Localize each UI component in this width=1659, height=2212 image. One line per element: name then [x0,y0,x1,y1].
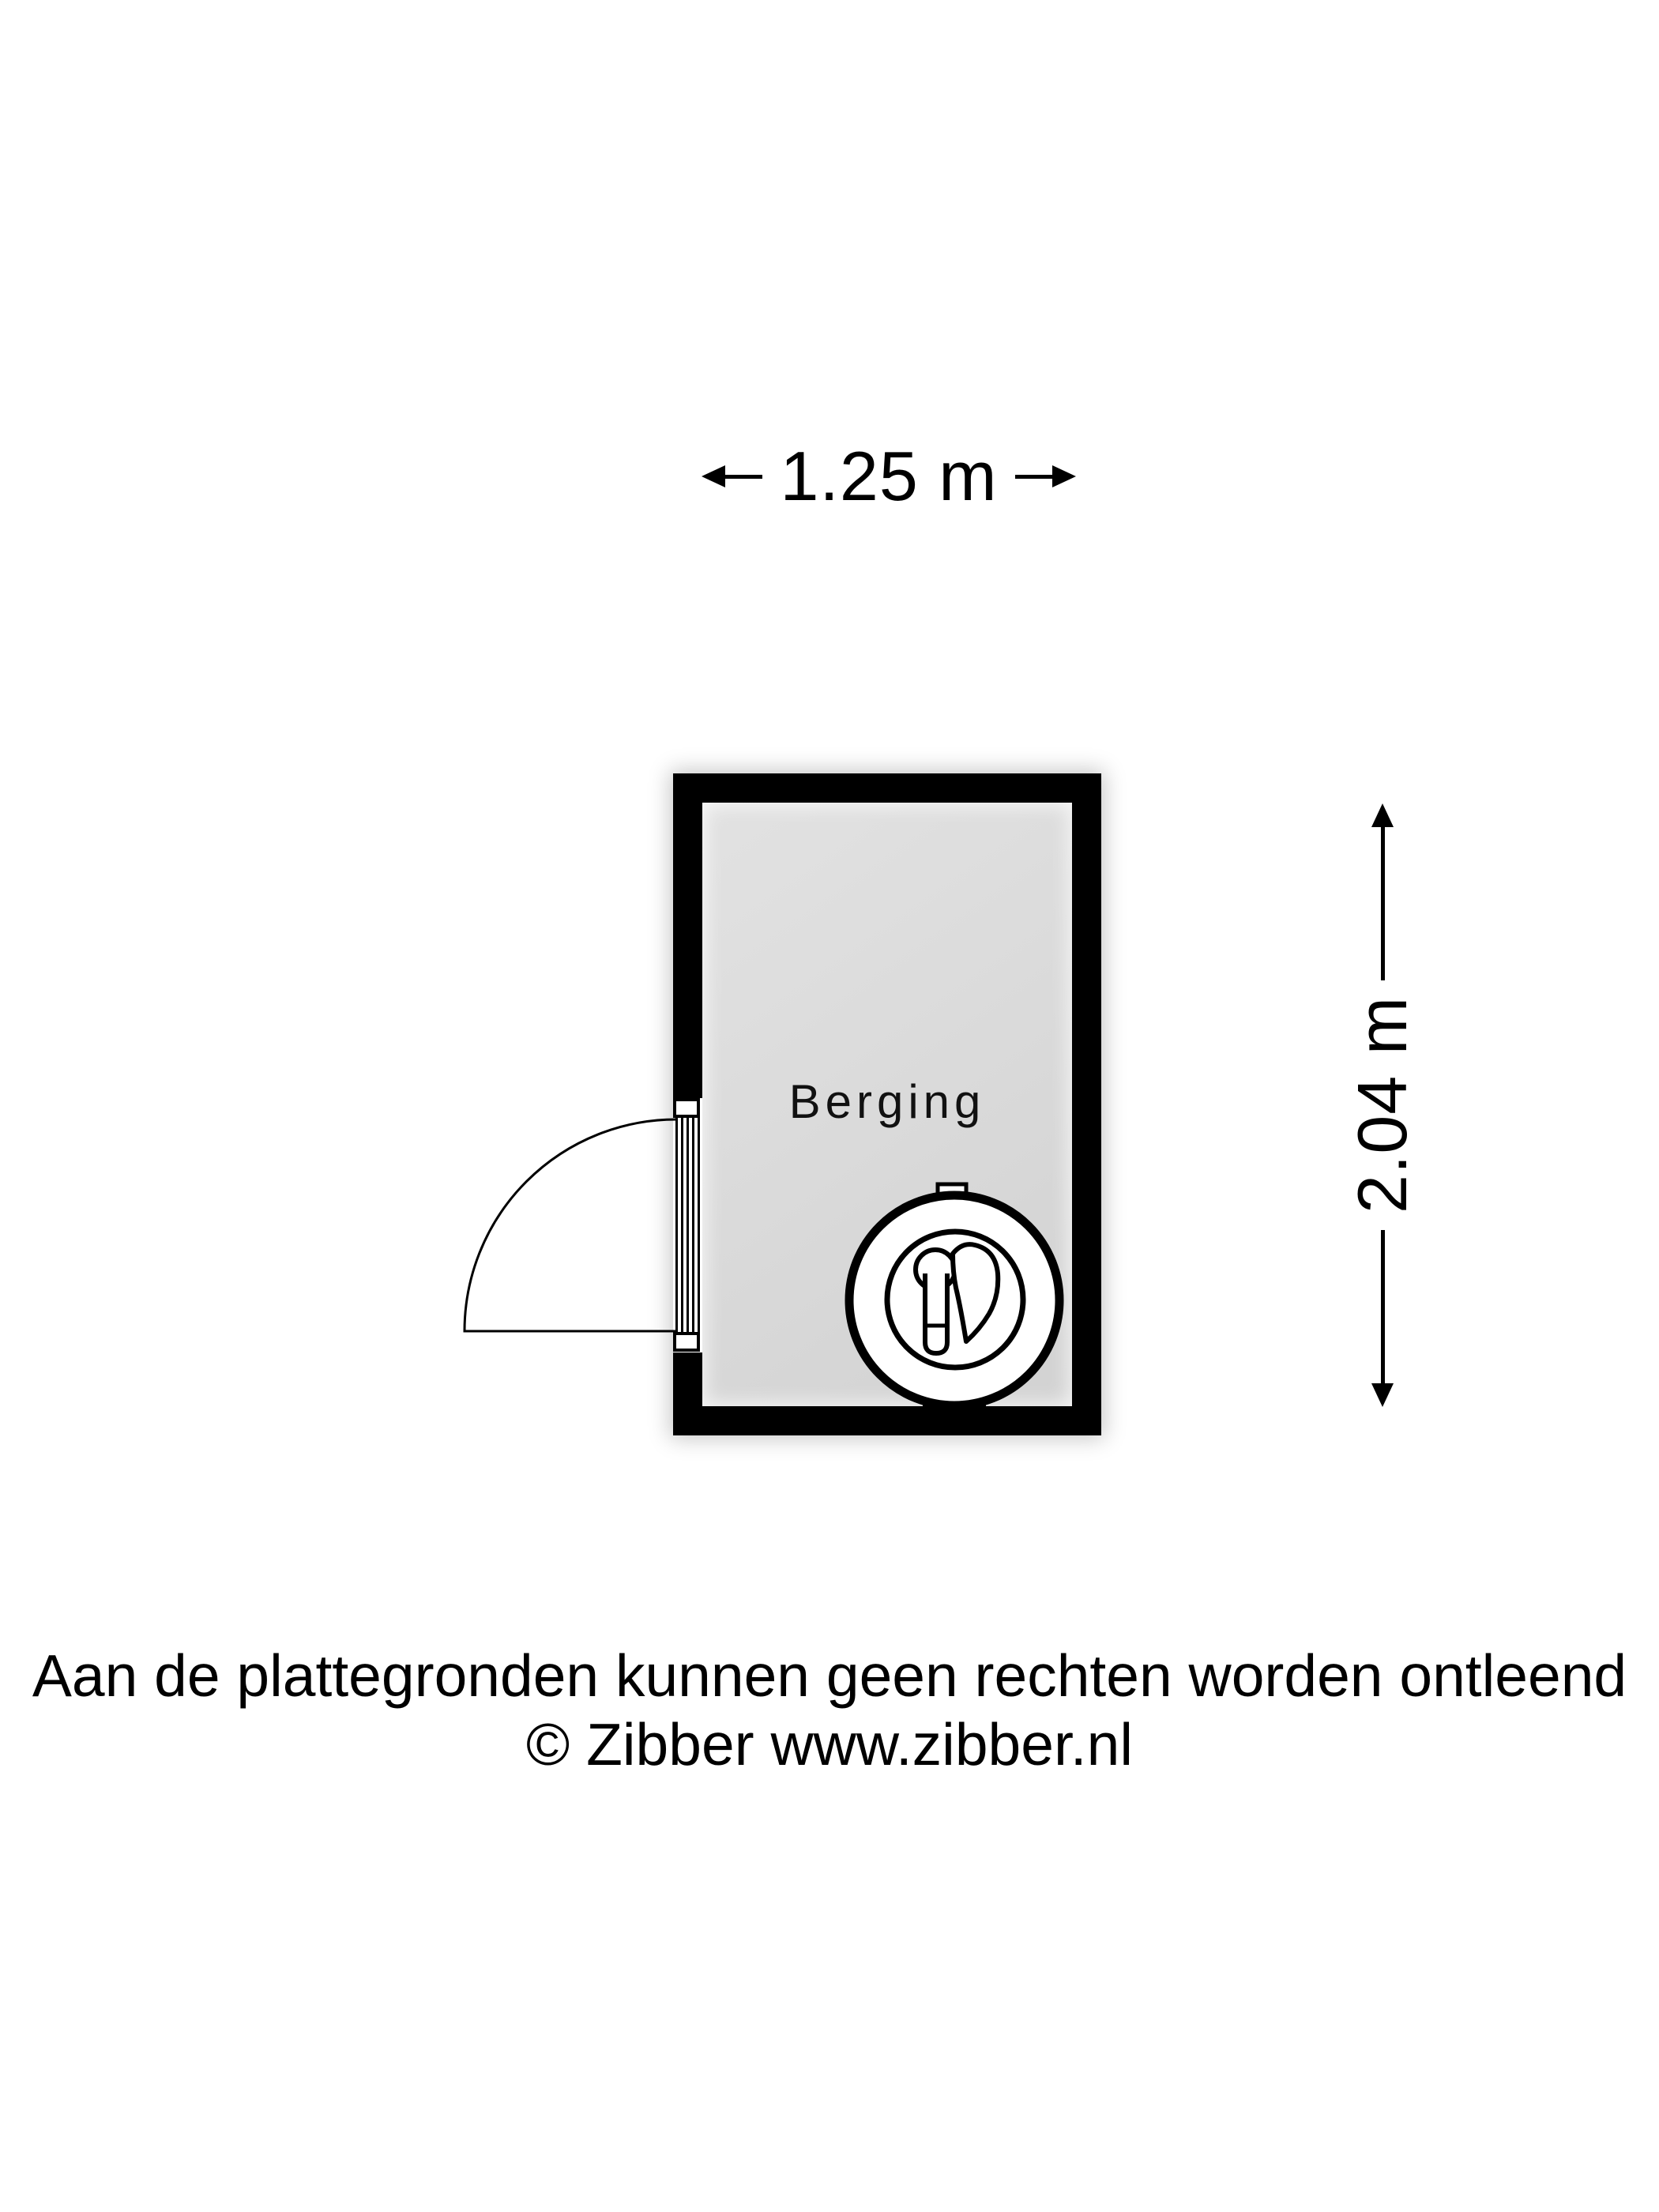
door-swing-icon [458,1112,687,1341]
arrow-right-icon [1052,465,1076,487]
width-dimension: 1.25 m [702,440,1076,513]
dimension-line [1381,827,1385,980]
dimension-line [1015,475,1052,479]
room-label: Berging [702,1077,1072,1127]
arrow-left-icon [702,465,725,487]
disclaimer: Aan de plattegronden kunnen geen rechten… [0,1642,1659,1779]
arrow-up-icon [1371,803,1394,827]
disclaimer-line1: Aan de plattegronden kunnen geen rechten… [0,1642,1659,1710]
width-dimension-label: 1.25 m [762,442,1014,511]
dimension-line [725,475,762,479]
height-dimension: 2.04 m [1349,803,1416,1407]
arrow-down-icon [1371,1383,1394,1407]
dimension-line [1381,1230,1385,1383]
washing-machine-icon [837,1177,1074,1414]
height-dimension-label: 2.04 m [1348,980,1417,1229]
floorplan-page: 1.25 m Berging 2.04 m [0,0,1659,2212]
disclaimer-line2: © Zibber www.zibber.nl [0,1710,1659,1779]
